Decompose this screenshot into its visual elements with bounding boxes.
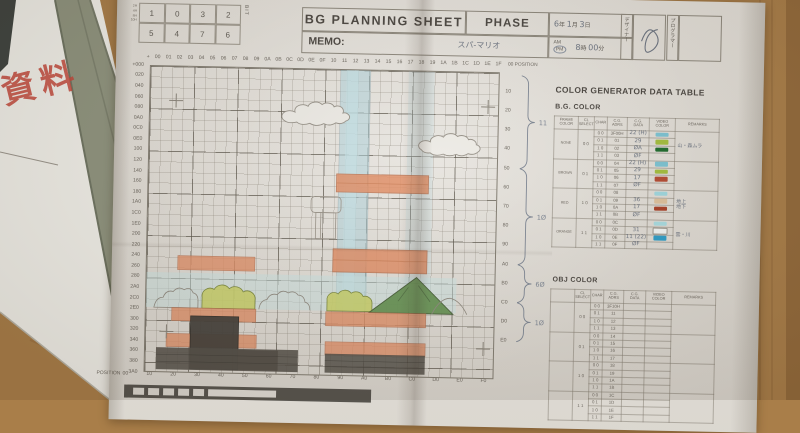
dark-ground-right: [325, 354, 425, 375]
color-swatch: [655, 162, 668, 167]
bit-cell: 1: [139, 3, 165, 24]
char-cell: 1 1: [588, 414, 601, 422]
title-box: BG PLANNING SHEET: [302, 7, 466, 34]
color-swatch: [654, 199, 667, 204]
row-label: 340: [130, 336, 139, 342]
frame-color-cell: RED: [552, 188, 577, 218]
remarks-cell: [674, 161, 719, 191]
col-label: 17: [405, 59, 416, 65]
col-label: 05: [207, 55, 218, 61]
date-line: 6年 1月 3日: [554, 19, 591, 29]
video-color-cell: [647, 242, 673, 250]
col-label: 14: [372, 59, 383, 65]
col-label: 18: [416, 60, 427, 66]
column-header: REMARKS: [675, 118, 719, 132]
phase-label: PHASE: [467, 12, 548, 36]
color-swatch: [655, 140, 668, 145]
col-label: 16: [394, 59, 405, 65]
level-drawing: [145, 66, 499, 378]
color-swatch: [653, 228, 668, 235]
grid-row-labels: +0000200400600800A00C00E0100120140160180…: [114, 64, 147, 371]
position-top-label: 00 POSITION: [508, 62, 538, 68]
row-label: 140: [133, 167, 142, 173]
month-label: 月: [572, 23, 578, 29]
col-label: 1D: [471, 61, 482, 67]
row-label: 0C0: [133, 125, 142, 131]
col-label: 1E: [482, 61, 493, 67]
right-position-label: 20: [505, 107, 511, 113]
minute-hand: 00: [588, 43, 598, 52]
remarks-cell: [670, 334, 715, 364]
col-prefix: +: [144, 54, 152, 60]
row-label: 0A0: [134, 114, 143, 120]
programmer-box: [678, 15, 722, 62]
col-label: 11: [339, 58, 350, 64]
orange-bar-mid-right: [333, 249, 427, 274]
bit-side-label: 10H: [126, 18, 137, 23]
row-label: 180: [133, 188, 142, 194]
bit-cell: 5: [138, 23, 164, 44]
right-position-label: 60: [503, 184, 509, 190]
remarks-cell: [670, 364, 715, 394]
right-position-label: 40: [504, 146, 510, 152]
day-label: 日: [584, 23, 590, 29]
bit-table-side-labels: 2H4H8H10H: [126, 3, 137, 22]
hour-label: 時: [580, 46, 586, 52]
row-label: 120: [133, 157, 142, 163]
orange-ground-1-right: [326, 312, 426, 328]
programmer-label: プログラマー: [669, 18, 677, 48]
row-label: 160: [133, 178, 142, 184]
col-label: 0E: [306, 57, 317, 63]
row-label: 2E0: [130, 305, 139, 311]
row-label: 1E0: [131, 220, 140, 226]
right-position-label: A0: [502, 261, 508, 267]
row-label: 360: [129, 347, 138, 353]
phase-box: PHASE: [466, 11, 549, 37]
cl-select-cell: 1 1: [576, 218, 593, 248]
cg-data-cell: ØF: [625, 241, 647, 249]
color-table-title: COLOR GENERATOR DATA TABLE: [555, 84, 705, 97]
bit-cell: 6: [215, 24, 241, 45]
brace-count: 11: [539, 119, 547, 127]
column-header: CHAR: [591, 290, 604, 303]
bit-cell: 7: [189, 24, 215, 45]
right-position-label: E0: [500, 338, 506, 344]
obj-color-table: CL SELECTCHARC.G. ADRSC.G. DATAVIDEO COL…: [548, 288, 717, 424]
orange-bar-mid-left: [178, 256, 255, 272]
cg-adrs-cell: 1F: [601, 414, 621, 422]
column-header: C.G. DATA: [624, 290, 646, 303]
col-label: 10: [328, 58, 339, 64]
row-label: 0E0: [133, 135, 142, 141]
column-header: CL SELECT: [578, 116, 594, 129]
bg-color-section-title: B.G. COLOR: [555, 103, 601, 111]
row-label: 020: [135, 72, 144, 78]
col-label: 1B: [449, 60, 460, 66]
right-position-label: 70: [503, 203, 509, 209]
designer-label: デザイナー: [623, 17, 631, 42]
col-label: 02: [174, 54, 185, 60]
col-label: 00: [152, 54, 163, 60]
bit-cell: 2: [215, 4, 241, 25]
memo-box: MEMO: スパ-マリオ: [301, 31, 548, 58]
col-label: 0A: [262, 56, 273, 62]
bit-label: BIT: [243, 5, 249, 16]
cg-data-cell: [621, 414, 643, 422]
sheet-title: BG PLANNING SHEET: [303, 8, 465, 33]
row-label: 060: [135, 93, 144, 99]
char-cell: 1 1: [592, 241, 605, 249]
year-label: 年: [559, 23, 565, 29]
cg-adrs-cell: 0F: [605, 241, 625, 249]
dark-ground-left: [156, 347, 298, 372]
row-label: 100: [134, 146, 143, 152]
col-label: 0B: [273, 57, 284, 63]
col-label: 12: [350, 58, 361, 64]
color-swatch: [653, 236, 666, 241]
row-label: 1C0: [131, 210, 140, 216]
row-label: 200: [132, 231, 141, 237]
cl-select-cell: 0 1: [573, 332, 590, 362]
color-swatch: [655, 177, 668, 182]
grid-canvas: [144, 65, 500, 379]
frame-color-cell: BROWN: [553, 158, 578, 188]
column-header: CL SELECT: [575, 289, 591, 302]
frame-color-cell: [549, 331, 574, 361]
planning-sheet: 2H4H8H10H 10325476 BIT BG PLANNING SHEET…: [109, 0, 766, 433]
cl-select-cell: 0 0: [574, 302, 591, 332]
right-position-label: B0: [501, 280, 507, 286]
row-label: 1A0: [132, 199, 141, 205]
bit-cell: 4: [164, 23, 190, 44]
color-swatch: [655, 169, 668, 174]
designer-signature: [633, 15, 667, 62]
brace: [517, 265, 532, 303]
bit-cell: 3: [190, 4, 216, 25]
row-label: 380: [129, 358, 138, 364]
video-color-cell: [643, 415, 669, 423]
frame-color-cell: ORANGE: [552, 218, 577, 248]
row-label: 080: [134, 104, 143, 110]
brace: [518, 169, 534, 265]
row-label: +000: [132, 61, 144, 67]
cl-select-cell: 1 0: [573, 362, 590, 392]
col-label: 1C: [460, 60, 471, 66]
row-label: 040: [135, 83, 144, 89]
column-header: VIDEO COLOR: [649, 118, 675, 132]
color-swatch: [655, 147, 668, 152]
column-header: CHAR: [594, 117, 607, 130]
column-header: REMARKS: [672, 291, 716, 305]
brace-count: 6Ø: [535, 281, 544, 289]
right-position-label: 50: [504, 165, 510, 171]
col-label: 04: [196, 55, 207, 61]
color-swatch: [656, 132, 669, 137]
col-label: 03: [185, 55, 196, 61]
remarks-cell: 地上 地下: [673, 191, 718, 221]
bit-cell: 0: [164, 3, 190, 24]
remarks-cell: [671, 304, 716, 334]
cl-select-cell: 1 1: [572, 391, 589, 421]
minute-label: 分: [598, 46, 604, 52]
col-label: 15: [383, 59, 394, 65]
col-label: 06: [218, 55, 229, 61]
bit-table: 2H4H8H10H 10325476 BIT: [138, 3, 241, 45]
row-label: 240: [131, 252, 140, 258]
col-label: 08: [240, 56, 251, 62]
bg-color-table: FRAME COLORCL SELECTCHARC.G. ADRSC.G. DA…: [551, 115, 720, 251]
designer-label-box: デザイナー: [620, 14, 633, 60]
col-label: 13: [361, 58, 372, 64]
col-label: 01: [163, 54, 174, 60]
designer-box: [632, 14, 666, 61]
cl-select-cell: 0 0: [578, 129, 595, 159]
brace-count: 1Ø: [537, 214, 546, 222]
remarks-cell: 雲・川: [673, 220, 718, 251]
col-label: 1F: [493, 61, 504, 67]
right-position-label: 80: [503, 223, 509, 229]
row-label: 2C0: [130, 294, 139, 300]
frame-color-cell: [550, 302, 575, 332]
obj-color-section-title: OBJ COLOR: [552, 276, 597, 284]
cl-select-cell: 0 1: [577, 159, 594, 189]
cl-select-cell: 1 0: [576, 189, 593, 219]
bit-table-cells: 10325476: [138, 3, 241, 45]
row-label: 300: [130, 315, 139, 321]
column-header: C.G. DATA: [627, 117, 649, 130]
row-label: 260: [131, 262, 140, 268]
row-label: 2A0: [130, 284, 139, 290]
pencil-structure-outline: [310, 196, 341, 239]
pm-label-circled: PM: [553, 45, 566, 53]
right-position-label: C0: [501, 299, 508, 305]
col-label: 19: [427, 60, 438, 66]
col-label: 0C: [284, 57, 295, 63]
col-label: 07: [229, 56, 240, 62]
column-header: FRAME COLOR: [554, 116, 578, 129]
right-position-label: 10: [505, 88, 511, 94]
handwritten-braces: 111Ø6Ø1Ø: [513, 73, 553, 381]
right-position-label: 90: [502, 242, 508, 248]
row-label: 320: [130, 326, 139, 332]
memo-handwriting: スパ-マリオ: [457, 39, 500, 51]
time-line: 8時 00分: [575, 43, 604, 53]
brace: [520, 76, 536, 169]
col-label: 1A: [438, 60, 449, 66]
right-position-label: 30: [505, 127, 511, 133]
row-label: 280: [131, 273, 140, 279]
memo-label: MEMO:: [308, 35, 344, 48]
desk-edge-shadow: [786, 0, 800, 400]
column-header: C.G. ADRS: [607, 117, 627, 130]
color-swatch: [654, 192, 667, 197]
column-header: [551, 289, 575, 302]
frame-color-cell: [548, 391, 573, 421]
col-label: 0D: [295, 57, 306, 63]
frame-color-cell: NONE: [554, 129, 579, 159]
orange-bar-upper: [336, 174, 428, 194]
programmer-label-box: プログラマー: [666, 15, 679, 61]
brace: [516, 303, 531, 342]
remarks-cell: 山・森ムラ: [675, 131, 720, 161]
brace-count: 1Ø: [535, 319, 544, 327]
col-label: 0F: [317, 57, 328, 63]
remarks-cell: [669, 393, 714, 423]
ampm: AM PM: [553, 39, 566, 53]
bottom-position-label: 00: [113, 370, 137, 376]
frame-color-cell: [549, 361, 574, 391]
column-header: C.G. ADRS: [604, 290, 624, 303]
cloud-outline-1: [282, 101, 350, 126]
col-label: 09: [251, 56, 262, 62]
column-header: VIDEO COLOR: [646, 291, 672, 305]
row-label: 220: [132, 241, 141, 247]
color-swatch: [654, 206, 667, 211]
color-swatch: [654, 221, 667, 226]
right-position-label: D0: [501, 319, 508, 325]
